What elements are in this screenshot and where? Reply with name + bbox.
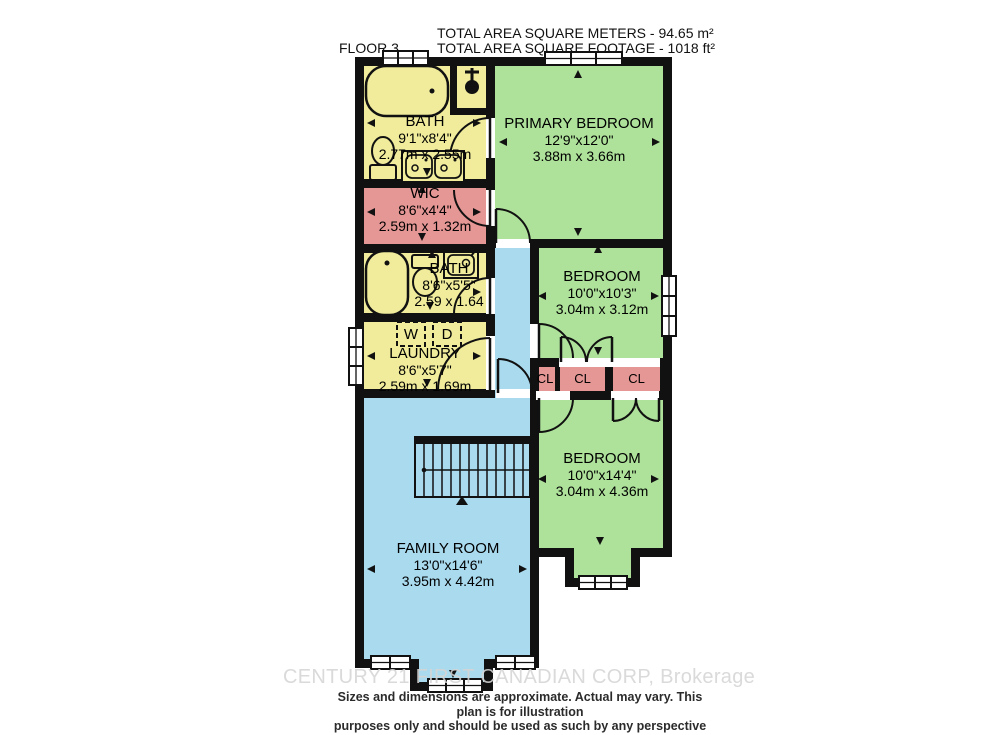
label-laundry: LAUNDRY 8'6"x5'7" 2.59m x 1.69m: [362, 345, 488, 394]
floorplan-drawing: [0, 0, 1000, 735]
floorplan-page: FLOOR 3 TOTAL AREA SQUARE METERS - 94.65…: [0, 0, 1000, 735]
label-dryer: D: [433, 326, 461, 343]
label-bedroom-middle: BEDROOM 10'0"x10'3" 3.04m x 3.12m: [534, 268, 670, 317]
room-family: [358, 393, 535, 664]
window-bedroom-bay: [579, 576, 627, 589]
label-washer: W: [397, 326, 425, 343]
disclaimer-line-1: Sizes and dimensions are approximate. Ac…: [330, 690, 710, 719]
label-closet-2: CL: [560, 371, 605, 386]
brokerage-watermark: CENTURY 21 FIRST CANADIAN CORP, Brokerag…: [283, 666, 755, 689]
label-closet-3: CL: [613, 371, 660, 386]
label-family-room: FAMILY ROOM 13'0"x14'6" 3.95m x 4.42m: [362, 540, 534, 589]
label-closet-1: CL: [531, 371, 559, 386]
window-top-bath: [383, 51, 428, 65]
label-primary-bedroom: PRIMARY BEDROOM 12'9"x12'0" 3.88m x 3.66…: [490, 115, 668, 164]
disclaimer-line-2: purposes only and should be used as such…: [330, 719, 710, 735]
bathtub-icon: [366, 66, 448, 116]
label-bath-main: BATH 9'1"x8'4" 2.77m x 2.55m: [362, 113, 488, 162]
disclaimer: Sizes and dimensions are approximate. Ac…: [330, 690, 710, 735]
window-left-laundry: [349, 328, 363, 385]
window-top-primary: [545, 52, 622, 65]
label-bath-second: BATH 8'6"x5'5" 2.59 x 1.64: [404, 260, 494, 309]
label-bedroom-back: BEDROOM 10'0"x14'4" 3.04m x 4.36m: [534, 450, 670, 499]
label-wic: WIC 8'6"x4'4" 2.59m x 1.32m: [362, 185, 488, 234]
